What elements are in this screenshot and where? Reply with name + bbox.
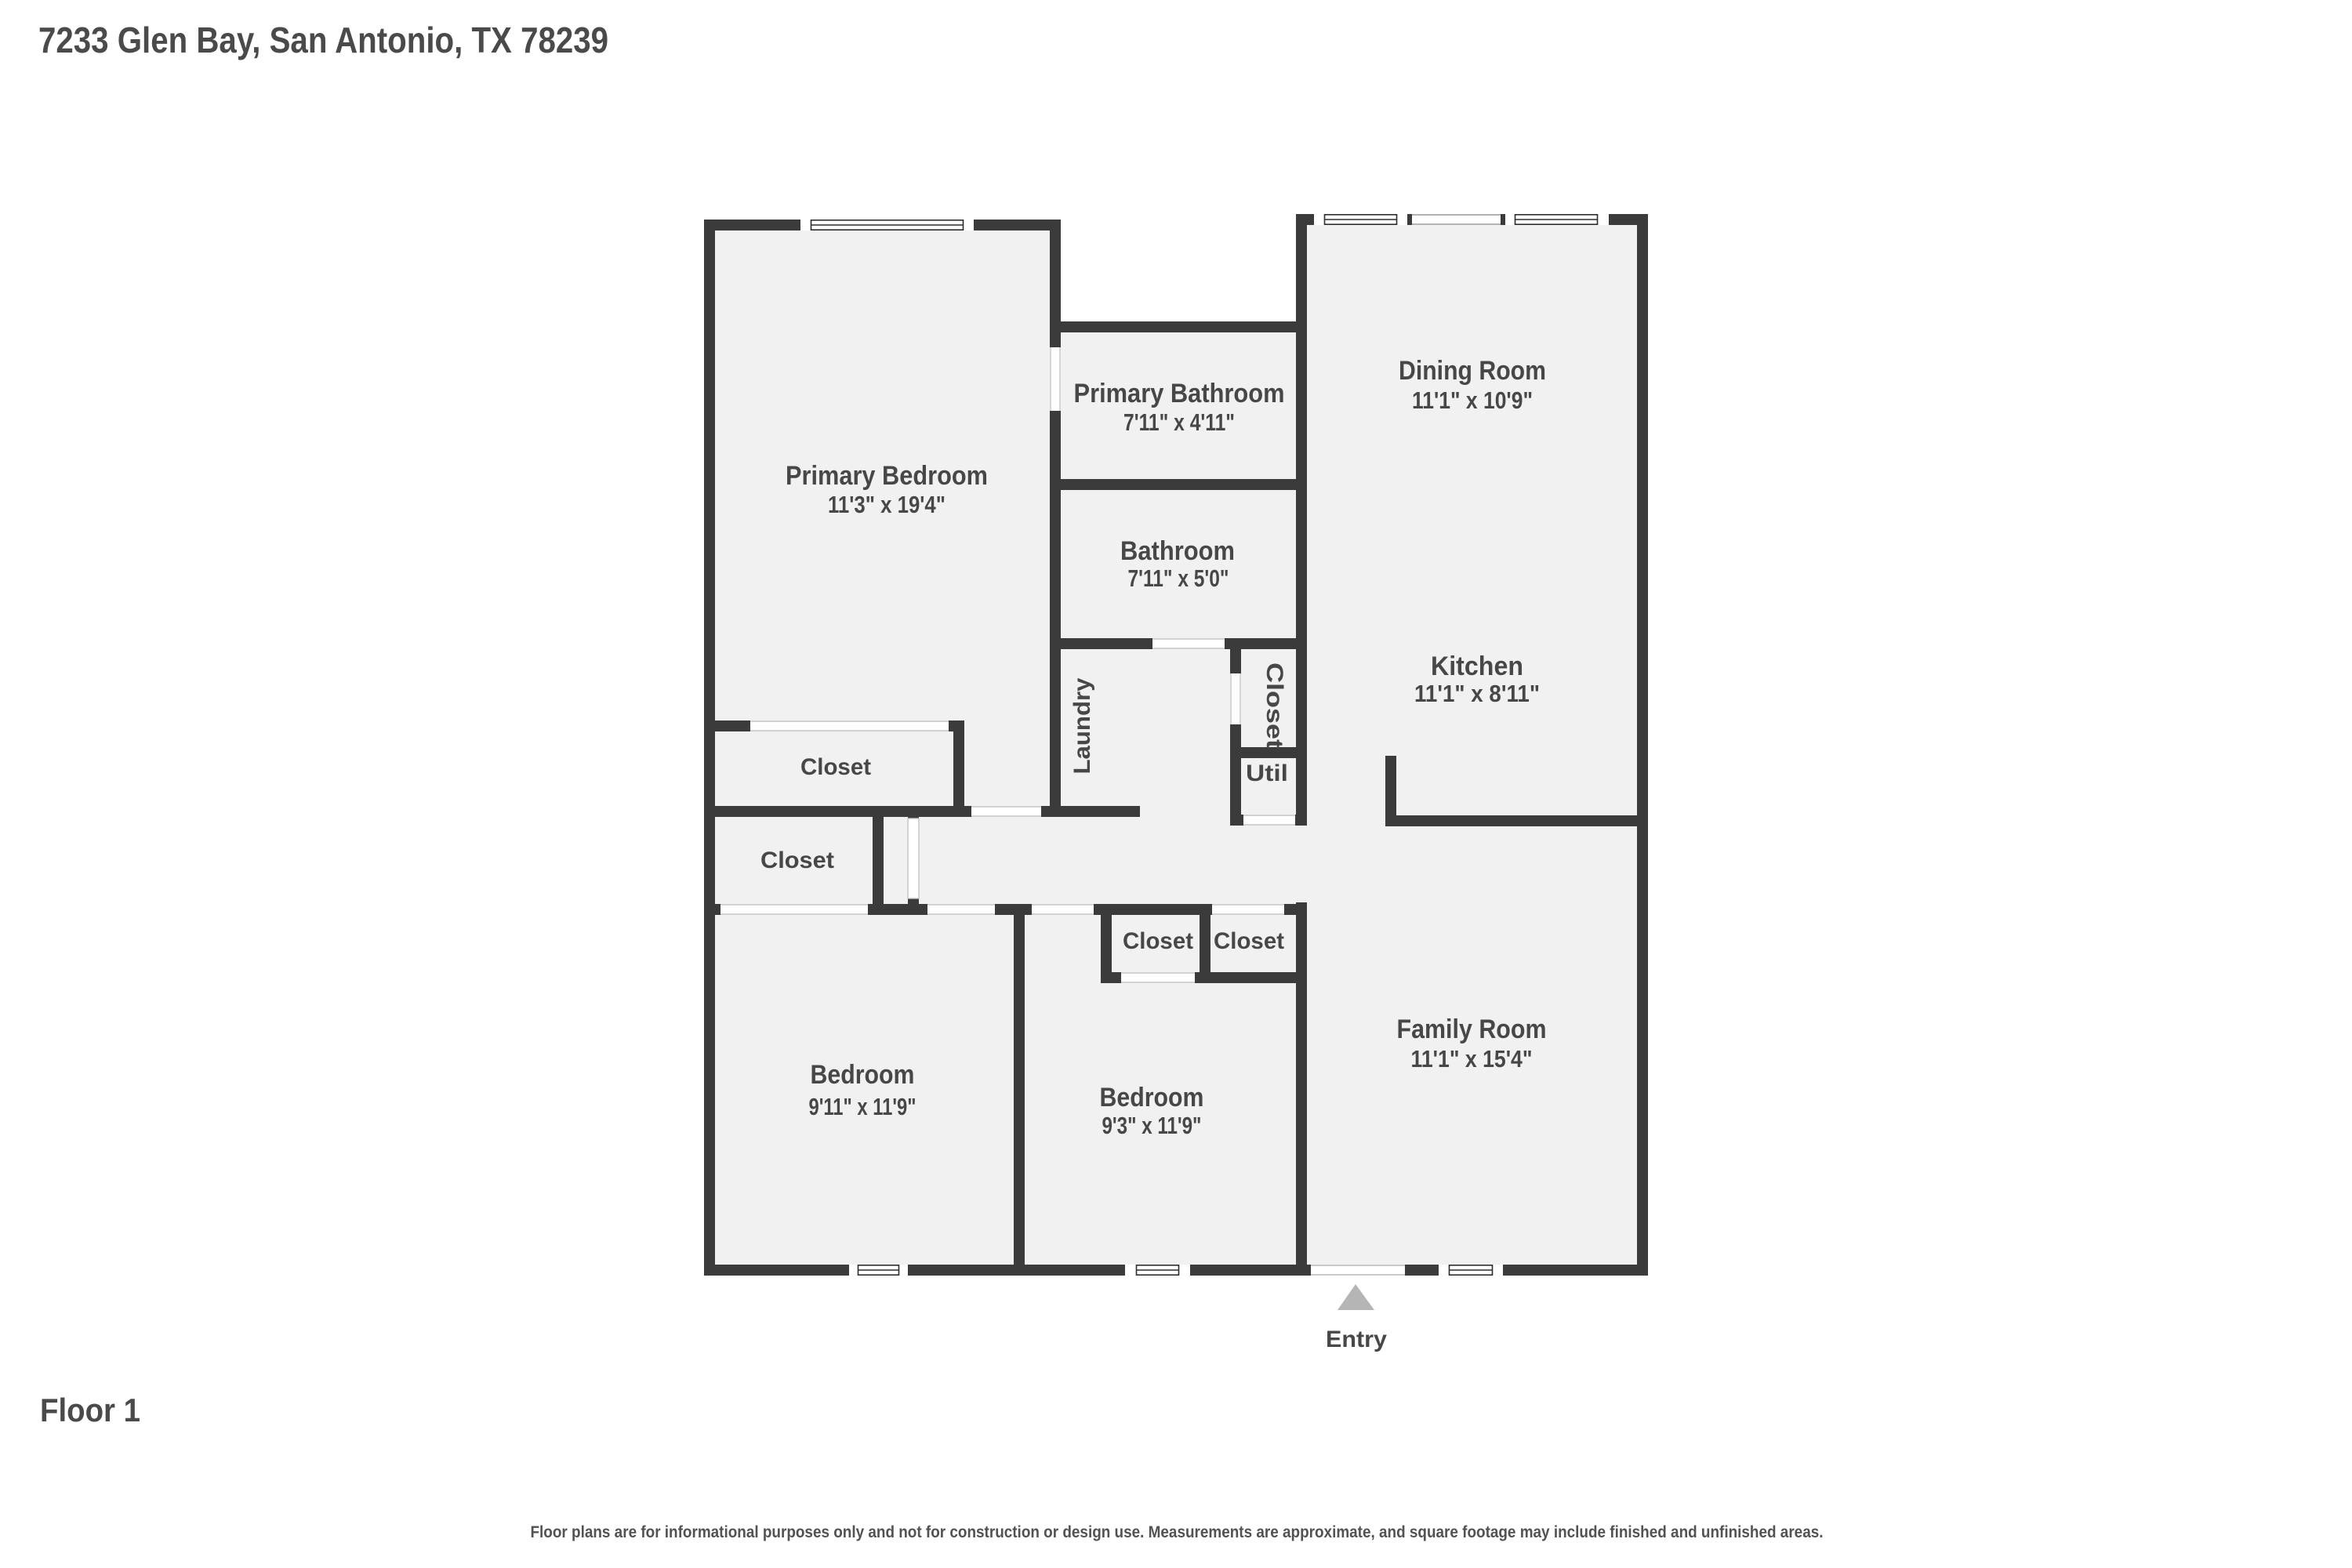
svg-text:Primary Bathroom: Primary Bathroom bbox=[1074, 379, 1285, 408]
svg-text:Bedroom: Bedroom bbox=[811, 1060, 915, 1090]
svg-text:Kitchen: Kitchen bbox=[1431, 652, 1523, 681]
svg-text:Floor plans are for informatio: Floor plans are for informational purpos… bbox=[531, 1523, 1824, 1541]
svg-text:7233 Glen Bay, San Antonio, TX: 7233 Glen Bay, San Antonio, TX 78239 bbox=[38, 20, 608, 60]
svg-text:Entry: Entry bbox=[1326, 1327, 1387, 1352]
svg-text:Closet: Closet bbox=[800, 754, 871, 780]
svg-text:Laundry: Laundry bbox=[1069, 677, 1095, 774]
svg-text:Closet: Closet bbox=[1214, 928, 1284, 954]
svg-text:Closet: Closet bbox=[1123, 928, 1193, 954]
svg-text:9'11" x 11'9": 9'11" x 11'9" bbox=[809, 1093, 916, 1120]
svg-text:7'11" x 5'0": 7'11" x 5'0" bbox=[1128, 564, 1229, 592]
svg-text:11'3" x 19'4": 11'3" x 19'4" bbox=[828, 491, 946, 518]
svg-text:Util: Util bbox=[1246, 760, 1288, 786]
svg-text:Closet: Closet bbox=[760, 848, 834, 873]
svg-text:7'11" x 4'11": 7'11" x 4'11" bbox=[1123, 408, 1235, 436]
svg-text:11'1" x 8'11": 11'1" x 8'11" bbox=[1414, 680, 1540, 707]
svg-text:Bedroom: Bedroom bbox=[1100, 1083, 1204, 1112]
svg-text:11'1" x 15'4": 11'1" x 15'4" bbox=[1411, 1045, 1533, 1073]
svg-text:9'3" x 11'9": 9'3" x 11'9" bbox=[1102, 1112, 1202, 1139]
svg-text:Closet: Closet bbox=[1261, 662, 1287, 749]
svg-text:Floor 1: Floor 1 bbox=[40, 1392, 140, 1428]
svg-text:Primary Bedroom: Primary Bedroom bbox=[786, 461, 988, 491]
svg-text:Bathroom: Bathroom bbox=[1120, 536, 1235, 566]
svg-text:Dining Room: Dining Room bbox=[1399, 356, 1546, 386]
svg-text:Family Room: Family Room bbox=[1397, 1014, 1547, 1044]
svg-text:11'1" x 10'9": 11'1" x 10'9" bbox=[1412, 387, 1533, 414]
